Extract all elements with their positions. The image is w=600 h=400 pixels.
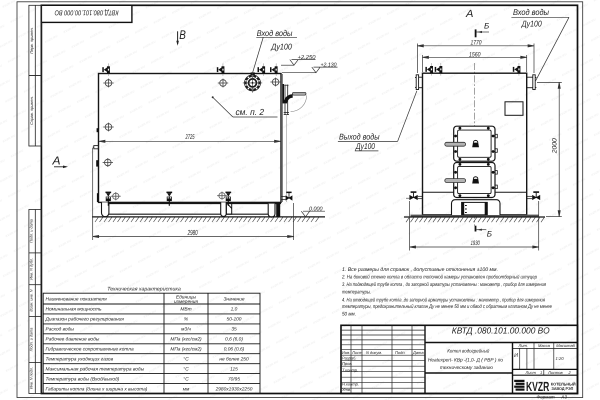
svg-text:1770: 1770 [471, 40, 482, 47]
svg-text:мм: мм [183, 387, 190, 392]
svg-text:3. На подводящей трубе котла ,: 3. На подводящей трубе котла , до запорн… [342, 282, 546, 288]
svg-text:2980: 2980 [187, 228, 198, 237]
svg-text:°С: °С [183, 356, 189, 362]
svg-text:Дата: Дата [412, 350, 424, 355]
svg-text:Взам. инв. N: Взам. инв. N [30, 289, 34, 311]
svg-text:2980х1930х2250: 2980х1930х2250 [215, 386, 253, 392]
svg-text:Лит.: Лит. [518, 343, 528, 348]
svg-text:МПа (кгс/см2): МПа (кгс/см2) [170, 347, 202, 353]
svg-text:ЗАВОД РЭП: ЗАВОД РЭП [552, 386, 574, 391]
svg-text:2725: 2725 [185, 134, 195, 141]
svg-text:4. На отводящей трубе котла ,д: 4. На отводящей трубе котла ,до запорной… [342, 297, 545, 303]
svg-text:50-100: 50-100 [227, 317, 242, 323]
svg-text:Расход воды: Расход воды [46, 327, 75, 333]
svg-text:1:20: 1:20 [556, 356, 565, 361]
svg-text:Б: Б [487, 229, 492, 238]
svg-text:Котел водогрейный: Котел водогрейный [447, 349, 489, 355]
svg-text:Номинальная мощность: Номинальная мощность [46, 307, 103, 313]
svg-text:Максимальная рабочая температу: Максимальная рабочая температура воды [46, 366, 145, 372]
svg-text:1930: 1930 [471, 240, 480, 247]
svg-text:Масштаб: Масштаб [556, 343, 575, 348]
svg-text:Инв. N дубл.: Инв. N дубл. [30, 258, 34, 280]
svg-text:2. На боковой стенке котла в о: 2. На боковой стенке котла в области топ… [341, 274, 537, 280]
svg-text:%: % [184, 317, 189, 323]
svg-text:°С: °С [183, 366, 189, 372]
svg-text:И: И [514, 353, 518, 359]
svg-text:0.000: 0.000 [309, 206, 323, 212]
svg-text:Наименование показателя: Наименование показателя [46, 297, 108, 303]
svg-text:Утв.: Утв. [342, 387, 351, 392]
svg-text:Т.контр.: Т.контр. [342, 368, 358, 373]
svg-text:не более 250: не более 250 [219, 356, 249, 362]
svg-text:35: 35 [231, 327, 237, 333]
svg-text:KVZR: KVZR [526, 379, 550, 394]
svg-text:см. п. 2: см. п. 2 [236, 107, 265, 117]
svg-text:Вход воды: Вход воды [513, 7, 549, 17]
svg-text:температуры.: температуры. [342, 289, 371, 295]
svg-text:Вход воды: Вход воды [257, 28, 293, 38]
svg-text:Ду100: Ду100 [270, 42, 292, 52]
svg-text:Рабочее давление воды: Рабочее давление воды [46, 337, 100, 343]
svg-text:Разраб.: Разраб. [342, 356, 356, 361]
svg-text:м3/ч: м3/ч [181, 327, 191, 333]
svg-text:измерения: измерения [174, 300, 198, 305]
svg-text:1560: 1560 [469, 51, 481, 58]
svg-text:70/95: 70/95 [228, 376, 240, 382]
svg-text:КВТД.080.101.00.000 ВО: КВТД.080.101.00.000 ВО [54, 9, 118, 16]
svg-text:МВт: МВт [180, 307, 191, 313]
svg-text:Б: Б [484, 21, 489, 30]
svg-text:Справ. примен.: Справ. примен. [29, 96, 34, 125]
svg-text:50 мм.: 50 мм. [342, 311, 356, 317]
svg-text:Пров.: Пров. [342, 361, 353, 366]
svg-text:0,06 (0,6): 0,06 (0,6) [224, 347, 245, 353]
svg-text:Ду100: Ду100 [355, 141, 375, 151]
svg-text:Лист: Лист [351, 350, 363, 355]
svg-text:Изм.: Изм. [342, 350, 351, 355]
svg-text:А: А [465, 9, 474, 20]
svg-text:МПа (кгс/см2): МПа (кгс/см2) [170, 337, 202, 343]
svg-text:температуры, предохранительный: температуры, предохранительный клапан Ду… [342, 304, 552, 310]
svg-text:1,0: 1,0 [231, 307, 238, 313]
svg-text:Значение: Значение [223, 297, 244, 303]
svg-text:Н.контр.: Н.контр. [342, 381, 359, 386]
svg-text:Подп.: Подп. [395, 350, 406, 355]
svg-text:+2.250: +2.250 [298, 55, 317, 61]
svg-text:0,6 (6,0): 0,6 (6,0) [225, 337, 243, 343]
svg-text:Диапазон рабочего регулировани: Диапазон рабочего регулирования [45, 317, 125, 323]
svg-text:1. Все размеры для справок , д: 1. Все размеры для справок , допустимые … [342, 267, 498, 273]
svg-text:Ду100: Ду100 [521, 19, 542, 29]
svg-text:Инв. N подл.: Инв. N подл. [30, 367, 34, 389]
svg-text:Гидравлическое сопротивление к: Гидравлическое сопротивление котла [46, 347, 134, 353]
svg-text:Листов: Листов [547, 370, 563, 375]
svg-text:+2.130: +2.130 [321, 62, 338, 68]
svg-text:Габариты котла (длина х ширина: Габариты котла (длина х ширина х высота) [46, 386, 148, 392]
svg-text:Техническая характеристика: Техническая характеристика [107, 286, 181, 292]
svg-text:Температура уходящих газов: Температура уходящих газов [46, 356, 114, 362]
svg-text:В: В [179, 28, 186, 42]
svg-text:Формат: Формат [537, 395, 555, 400]
svg-text:А3: А3 [560, 395, 567, 400]
svg-text:Перв. примен.: Перв. примен. [29, 27, 34, 54]
svg-text:Heatexpert- КВр -(1,0- Д ( РВР: Heatexpert- КВр -(1,0- Д ( РВР ) по [428, 357, 503, 363]
svg-text:КВТД .080.101.00.000 ВО: КВТД .080.101.00.000 ВО [452, 326, 550, 336]
svg-text:Подп. и дата: Подп. и дата [30, 219, 34, 243]
svg-text:1: 1 [540, 370, 542, 375]
svg-text:техническому заданию: техническому заданию [440, 365, 493, 371]
svg-text:115: 115 [230, 366, 238, 372]
svg-text:А: А [51, 155, 60, 168]
svg-text:Подп. и дата: Подп. и дата [30, 328, 34, 352]
svg-text:2000: 2000 [552, 138, 559, 155]
svg-text:Масса: Масса [538, 343, 551, 348]
svg-text:°С: °С [183, 376, 189, 382]
svg-text:Лист: Лист [525, 370, 537, 375]
svg-text:N докум.: N докум. [366, 350, 382, 355]
svg-text:Температура воды (Вход/выход): Температура воды (Вход/выход) [46, 376, 120, 382]
